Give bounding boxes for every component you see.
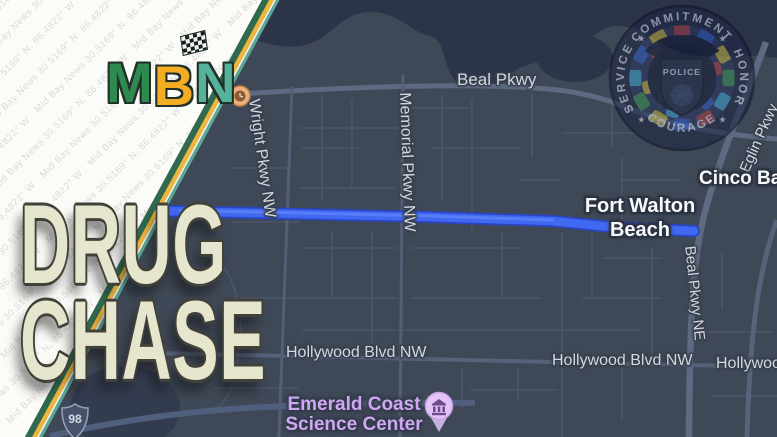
label-beal-pkwy: Beal Pkwy [457,70,536,90]
us-98-number: 98 [68,412,82,426]
news-graphic: POLICE COMMITMENT HONOR SERVICE COU [0,0,777,437]
label-hollywood-blvd-2: Hollywood Blvd NW [552,352,692,370]
water-pond [537,34,613,82]
badge-star: ★ [718,115,726,125]
us-route-shield-icon: 98 [60,402,90,437]
science-line-2: Science Center [279,415,429,435]
logo-letter-m: M [106,50,154,115]
headline: DRUG CHASE [20,200,417,386]
logo-letter-n: N [195,50,236,115]
badge-star: ★ [718,34,726,44]
label-cinco-bayou: Cinco Bayou [699,167,777,191]
mbn-logo: MBN [106,50,237,115]
city-line-1: Fort Walton [555,194,725,218]
label-hollywood-blvd-3: Hollywood Blvd NW [716,355,777,373]
badge-star: ★ [637,34,645,44]
police-badge-icon: POLICE COMMITMENT HONOR SERVICE COU [608,4,756,157]
badge-shield-label: POLICE [663,67,701,77]
headline-line-2: CHASE [20,296,266,386]
city-line-2: Beach [555,218,725,242]
label-science-center: Emerald Coast Science Center [279,395,429,435]
headline-line-1: DRUG [20,200,266,290]
badge-star: ★ [637,115,645,125]
label-fort-walton-beach: Fort Walton Beach [555,194,725,242]
science-line-1: Emerald Coast [279,395,429,415]
logo-letter-b: B [154,53,195,118]
